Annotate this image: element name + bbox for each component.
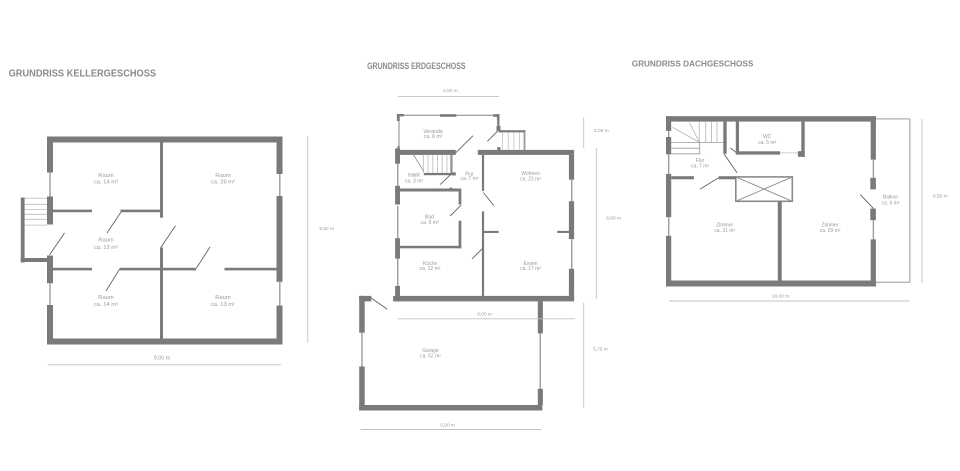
svg-text:ca. 3 m²: ca. 3 m² [405, 178, 423, 184]
svg-text:2,00 m: 2,00 m [594, 128, 609, 134]
svg-text:ca. 5 m²: ca. 5 m² [758, 140, 776, 146]
svg-text:Raum: Raum [215, 173, 231, 179]
svg-text:9,00 m: 9,00 m [477, 312, 492, 318]
svg-text:8,50 m: 8,50 m [606, 216, 621, 222]
svg-text:5,00 m: 5,00 m [440, 422, 455, 428]
svg-text:Raum: Raum [98, 173, 114, 179]
svg-text:9,00 m: 9,00 m [154, 355, 171, 361]
svg-text:ca. 21 m²: ca. 21 m² [714, 228, 735, 234]
svg-text:8,50 m: 8,50 m [933, 194, 948, 200]
svg-text:ca. 6 m²: ca. 6 m² [424, 134, 443, 140]
svg-text:ca. 12 m²: ca. 12 m² [94, 245, 118, 251]
svg-text:Raum: Raum [215, 295, 231, 301]
svg-text:ca. 52 m²: ca. 52 m² [420, 353, 441, 359]
svg-text:ca. 9 m²: ca. 9 m² [420, 220, 438, 226]
svg-text:ca. 14 m²: ca. 14 m² [94, 302, 118, 308]
svg-text:ca. 12 m²: ca. 12 m² [420, 266, 441, 272]
svg-text:ca. 6 m²: ca. 6 m² [881, 201, 899, 207]
svg-text:4,50 m: 4,50 m [443, 88, 458, 94]
svg-text:ca. 7 m²: ca. 7 m² [460, 176, 478, 182]
svg-text:10,00 m: 10,00 m [772, 293, 789, 299]
svg-text:ca. 21 m²: ca. 21 m² [520, 176, 541, 182]
svg-text:ca. 26 m²: ca. 26 m² [211, 180, 235, 186]
svg-text:ca. 14 m²: ca. 14 m² [94, 180, 118, 186]
svg-text:GRUNDRISS ERDGESCHOSS: GRUNDRISS ERDGESCHOSS [367, 61, 466, 71]
svg-text:GRUNDRISS DACHGESCHOSS: GRUNDRISS DACHGESCHOSS [632, 60, 754, 69]
svg-text:GRUNDRISS KELLERGESCHOSS: GRUNDRISS KELLERGESCHOSS [9, 69, 157, 80]
svg-text:ca. 17 m²: ca. 17 m² [520, 266, 541, 272]
svg-text:Balkon: Balkon [883, 194, 899, 200]
svg-text:9,50 m: 9,50 m [319, 226, 334, 232]
svg-text:Raum: Raum [98, 237, 114, 243]
svg-text:ca. 13 m²: ca. 13 m² [211, 302, 235, 308]
svg-text:ca. 29 m²: ca. 29 m² [820, 228, 841, 234]
svg-text:5,75 m: 5,75 m [593, 346, 608, 352]
svg-text:Raum: Raum [98, 295, 114, 301]
svg-text:ca. 7 m²: ca. 7 m² [691, 163, 709, 169]
svg-text:WC: WC [763, 134, 772, 140]
